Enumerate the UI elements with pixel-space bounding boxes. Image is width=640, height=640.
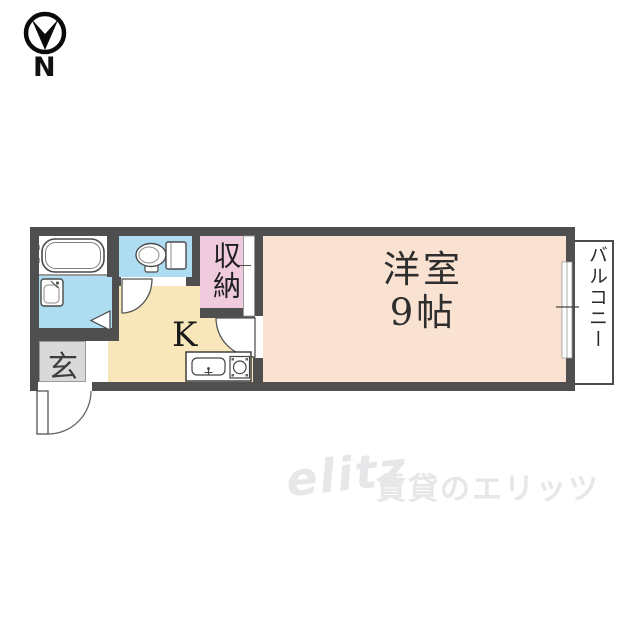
- room-kitchen-floor: [108, 341, 119, 382]
- watermark-jp-text: 賃貸のエリッツ: [376, 472, 600, 507]
- storage-label: 収納: [205, 241, 245, 301]
- room-bath-floor: [39, 236, 107, 276]
- main-room-name: 洋室: [313, 248, 533, 291]
- wall-mainroom-upper: [255, 227, 263, 316]
- room-toilet-floor: [119, 236, 192, 277]
- toilet-door-opening: [121, 277, 186, 286]
- main-room-label: 洋室 9帖: [313, 248, 533, 334]
- kitchen-label: K: [172, 315, 197, 355]
- room-kitchen-floor: [200, 318, 253, 382]
- wall-toilet-storage: [192, 227, 200, 286]
- wall-mainroom-lower: [255, 358, 263, 391]
- wall-storage-bottom: [200, 308, 255, 318]
- hall-floor: [86, 341, 108, 382]
- room-washroom-floor: [39, 276, 112, 328]
- compass-north-label: N: [33, 52, 56, 83]
- kitchen-door-opening: [255, 316, 263, 358]
- watermark-text: 賃貸のエリッツ: [376, 464, 600, 508]
- main-room-size: 9帖: [313, 291, 533, 334]
- balcony-label: バルコニー: [584, 245, 611, 350]
- wall-washroom-bottom: [30, 328, 118, 341]
- floorplan-page: { "compass": { "north_label": "N" }, "ro…: [0, 0, 640, 640]
- wall-bath-toilet: [107, 227, 119, 277]
- entrance-label: 玄: [48, 342, 78, 386]
- entrance-door-arc: [37, 391, 91, 434]
